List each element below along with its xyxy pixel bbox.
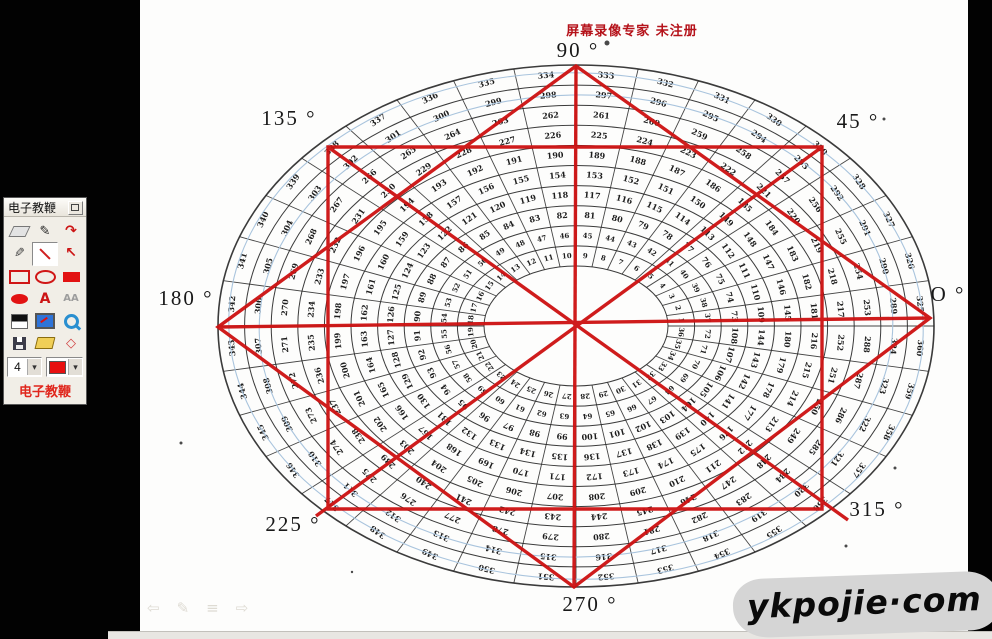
svg-text:210: 210 (667, 473, 687, 489)
svg-text:16: 16 (474, 290, 486, 303)
palette-footer-label: 电子教鞭 (4, 379, 86, 404)
angle-label-225: 225 ° (265, 512, 320, 536)
svg-text:278: 278 (491, 523, 510, 537)
svg-text:89: 89 (416, 290, 429, 304)
svg-text:46: 46 (559, 231, 570, 241)
svg-text:273: 273 (303, 405, 319, 425)
ellipse-outline-tool[interactable] (32, 266, 58, 288)
svg-text:191: 191 (505, 153, 524, 167)
svg-text:83: 83 (528, 212, 542, 225)
svg-text:106: 106 (712, 363, 728, 383)
svg-text:43: 43 (626, 238, 639, 250)
recorder-banner: 屏幕录像专家 未注册 (532, 20, 732, 39)
svg-text:337: 337 (368, 111, 387, 129)
svg-text:346: 346 (284, 460, 302, 480)
svg-text:47: 47 (536, 233, 548, 244)
svg-text:78: 78 (660, 228, 675, 243)
svg-text:102: 102 (634, 419, 653, 435)
clear-strokes-tool-icon: ↷ (65, 224, 77, 238)
angle-label-270: 270 ° (562, 592, 617, 616)
svg-text:28: 28 (580, 391, 591, 401)
svg-text:114: 114 (673, 209, 693, 227)
svg-text:115: 115 (645, 199, 664, 215)
svg-text:139: 139 (673, 425, 693, 443)
svg-text:226: 226 (544, 129, 562, 140)
svg-text:57: 57 (450, 358, 462, 371)
svg-text:202: 202 (371, 415, 389, 434)
svg-text:142: 142 (737, 372, 753, 391)
svg-text:123: 123 (415, 241, 433, 261)
svg-text:9: 9 (582, 251, 588, 260)
diamond-shape-tool-icon: ◇ (66, 337, 76, 350)
svg-text:51: 51 (461, 267, 474, 280)
svg-text:134: 134 (518, 446, 537, 460)
svg-text:137: 137 (615, 446, 634, 460)
svg-text:17: 17 (468, 302, 479, 314)
text-tool-icon: A (40, 292, 51, 306)
next-slide-button[interactable]: ⇨ (236, 601, 249, 616)
svg-text:35: 35 (673, 338, 684, 350)
svg-text:93: 93 (424, 365, 438, 380)
svg-text:218: 218 (826, 267, 840, 286)
angle-label-315: 315 ° (849, 497, 904, 521)
svg-text:87: 87 (438, 255, 453, 270)
svg-text:334: 334 (537, 69, 555, 80)
font-tool[interactable]: AA (58, 288, 84, 310)
svg-text:45: 45 (582, 231, 593, 241)
diamond-shape-tool[interactable]: ◇ (58, 332, 84, 354)
svg-text:183: 183 (785, 244, 801, 264)
svg-text:283: 283 (734, 491, 754, 509)
svg-text:164: 164 (363, 355, 377, 374)
palette-titlebar: 电子教鞭 (4, 198, 86, 217)
svg-text:200: 200 (338, 361, 352, 380)
svg-text:108: 108 (729, 327, 740, 345)
svg-text:117: 117 (583, 189, 601, 200)
ellipse-filled-tool[interactable] (6, 288, 32, 310)
eraser-icon (8, 226, 30, 237)
svg-text:188: 188 (629, 153, 648, 167)
svg-text:207: 207 (546, 491, 564, 502)
svg-text:339: 339 (284, 171, 302, 191)
svg-text:348: 348 (368, 523, 388, 541)
svg-text:7: 7 (617, 257, 625, 267)
svg-text:153: 153 (586, 169, 604, 180)
svg-text:193: 193 (429, 176, 449, 194)
svg-text:62: 62 (536, 408, 548, 419)
svg-text:29: 29 (597, 389, 609, 400)
svg-text:65: 65 (604, 408, 616, 419)
floppy-disk-icon (13, 337, 26, 350)
pen-color-select[interactable]: ▾ (46, 357, 83, 377)
slideshow-controls: ⇦✎≡⇨ (147, 601, 248, 616)
svg-text:67: 67 (645, 394, 658, 407)
annotation-palette: 电子教鞭 ✎↷✎↖AAA◇ 4 ▾ ▾ 电子教鞭 (3, 197, 87, 405)
svg-text:211: 211 (704, 458, 723, 476)
svg-text:208: 208 (588, 491, 606, 502)
svg-text:192: 192 (465, 162, 484, 178)
svg-text:187: 187 (667, 162, 686, 178)
pen-size-value: 4 (8, 360, 27, 374)
svg-text:184: 184 (763, 218, 781, 238)
svg-text:189: 189 (588, 149, 606, 160)
svg-text:353: 353 (656, 562, 675, 576)
slide-menu-button[interactable]: ≡ (206, 601, 219, 616)
svg-text:30: 30 (614, 384, 627, 396)
arrow-tool[interactable]: ↖ (58, 242, 84, 264)
svg-text:33: 33 (656, 360, 669, 373)
marker-tool[interactable]: ✎ (6, 242, 32, 264)
magnifier-icon (64, 314, 79, 329)
svg-text:31: 31 (630, 377, 643, 390)
svg-text:198: 198 (332, 302, 343, 320)
ellipse-filled-icon (11, 294, 28, 304)
svg-text:342: 342 (226, 295, 237, 313)
svg-text:290: 290 (877, 257, 891, 276)
svg-text:72: 72 (703, 329, 713, 340)
svg-text:34: 34 (666, 349, 678, 362)
svg-text:58: 58 (461, 371, 474, 384)
svg-text:70: 70 (690, 358, 702, 371)
angle-label-180: 180 ° (158, 286, 213, 310)
arrow-tool-icon: ↖ (65, 246, 77, 260)
svg-text:244: 244 (590, 511, 608, 522)
svg-text:91: 91 (412, 330, 423, 342)
svg-text:49: 49 (493, 245, 506, 258)
svg-text:133: 133 (487, 437, 507, 453)
svg-text:262: 262 (542, 109, 560, 120)
svg-text:169: 169 (476, 455, 496, 471)
svg-text:98: 98 (528, 427, 542, 440)
svg-text:175: 175 (688, 441, 707, 459)
svg-text:103: 103 (657, 408, 677, 426)
svg-text:197: 197 (338, 272, 352, 291)
svg-text:13: 13 (509, 262, 522, 275)
svg-text:174: 174 (656, 455, 676, 471)
line-tool[interactable] (32, 242, 58, 266)
svg-text:264: 264 (443, 126, 463, 142)
svg-text:155: 155 (512, 173, 531, 187)
chevron-down-icon: ▾ (68, 359, 82, 375)
svg-text:71: 71 (698, 344, 709, 356)
svg-text:25: 25 (525, 384, 538, 396)
svg-text:81: 81 (584, 210, 596, 221)
svg-text:82: 82 (556, 210, 568, 221)
chevron-down-icon: ▾ (27, 359, 41, 375)
svg-text:225: 225 (590, 129, 608, 140)
svg-text:148: 148 (741, 229, 759, 249)
svg-text:99: 99 (556, 431, 568, 442)
angle-label-45: 45 ° (837, 109, 880, 133)
font-tool-icon: AA (63, 294, 78, 304)
angle-label-90: 90 ° (557, 38, 600, 62)
svg-text:8: 8 (600, 253, 607, 263)
svg-text:154: 154 (549, 169, 567, 180)
svg-text:19: 19 (466, 327, 476, 338)
svg-text:162: 162 (358, 304, 369, 322)
rectangle-filled-icon (63, 272, 80, 282)
svg-text:276: 276 (398, 490, 418, 508)
svg-text:112: 112 (720, 241, 738, 260)
svg-text:281: 281 (642, 524, 661, 538)
svg-text:166: 166 (393, 403, 411, 423)
svg-text:201: 201 (351, 389, 367, 408)
svg-text:233: 233 (312, 267, 326, 286)
svg-text:172: 172 (586, 471, 604, 482)
svg-text:121: 121 (460, 209, 479, 227)
svg-text:101: 101 (608, 426, 627, 440)
svg-text:186: 186 (704, 177, 724, 195)
svg-text:280: 280 (592, 531, 610, 542)
screen-capture-tool[interactable] (32, 310, 58, 332)
svg-text:138: 138 (645, 437, 665, 453)
svg-text:288: 288 (862, 336, 873, 354)
svg-text:127: 127 (385, 329, 396, 347)
angle-label-0: O ° (931, 282, 966, 306)
svg-text:80: 80 (611, 212, 625, 225)
svg-text:271: 271 (279, 336, 290, 354)
svg-text:111: 111 (737, 261, 753, 280)
svg-text:170: 170 (511, 465, 530, 479)
svg-text:11: 11 (543, 252, 555, 263)
svg-text:22: 22 (483, 360, 496, 373)
svg-text:52: 52 (450, 281, 462, 294)
marker-tool-icon: ✎ (14, 247, 25, 260)
svg-text:360: 360 (915, 339, 926, 357)
svg-text:38: 38 (698, 297, 709, 309)
svg-text:92: 92 (416, 348, 429, 361)
svg-text:55: 55 (439, 329, 449, 340)
svg-text:128: 128 (389, 350, 403, 369)
svg-text:217: 217 (835, 301, 846, 319)
svg-text:100: 100 (581, 431, 599, 442)
svg-text:12: 12 (525, 256, 538, 268)
svg-text:214: 214 (785, 389, 801, 409)
pen-menu-button[interactable]: ✎ (177, 601, 190, 616)
eraser-tool[interactable] (6, 220, 32, 242)
svg-text:124: 124 (399, 260, 415, 280)
palette-title: 电子教鞭 (8, 199, 56, 216)
svg-text:182: 182 (800, 272, 814, 291)
svg-text:36: 36 (676, 327, 686, 338)
previous-slide-button[interactable]: ⇦ (147, 601, 160, 616)
rectangle-outline-icon (9, 270, 30, 284)
svg-text:321: 321 (829, 449, 847, 468)
svg-text:97: 97 (501, 420, 515, 434)
line-icon (39, 248, 50, 259)
palette-combos: 4 ▾ ▾ (4, 355, 86, 379)
svg-text:216: 216 (809, 332, 820, 350)
open-button[interactable] (32, 332, 58, 354)
monitor-icon (35, 313, 55, 329)
svg-text:40: 40 (678, 267, 691, 280)
svg-text:53: 53 (443, 297, 454, 309)
svg-text:204: 204 (429, 457, 449, 475)
open-folder-icon (35, 337, 56, 349)
svg-text:21: 21 (474, 349, 486, 362)
svg-text:85: 85 (477, 228, 492, 243)
svg-text:171: 171 (549, 471, 567, 482)
svg-text:253: 253 (862, 299, 873, 317)
svg-text:286: 286 (833, 406, 849, 426)
svg-text:235: 235 (305, 334, 316, 352)
svg-text:2: 2 (673, 304, 683, 311)
svg-text:335: 335 (477, 76, 496, 90)
svg-text:165: 165 (375, 380, 391, 399)
svg-text:163: 163 (358, 330, 369, 348)
svg-text:54: 54 (439, 313, 449, 324)
svg-text:236: 236 (312, 366, 326, 385)
svg-text:245: 245 (635, 504, 654, 518)
svg-text:190: 190 (546, 149, 564, 160)
svg-text:196: 196 (351, 243, 367, 263)
svg-text:56: 56 (442, 343, 453, 355)
svg-text:146: 146 (774, 277, 788, 296)
svg-text:135: 135 (551, 451, 569, 462)
svg-text:74: 74 (724, 291, 737, 305)
svg-text:75: 75 (714, 272, 728, 286)
palette-titlebar-button[interactable] (68, 201, 83, 215)
svg-text:160: 160 (375, 252, 391, 272)
svg-text:24: 24 (509, 377, 522, 390)
svg-text:105: 105 (698, 380, 716, 399)
svg-text:42: 42 (645, 245, 658, 258)
svg-text:255: 255 (833, 227, 849, 246)
svg-text:119: 119 (518, 192, 537, 206)
svg-text:141: 141 (720, 392, 738, 411)
watermark-text: ykpojie·com (732, 570, 992, 638)
svg-text:270: 270 (279, 298, 290, 316)
svg-text:132: 132 (460, 425, 479, 443)
svg-text:267: 267 (327, 195, 345, 214)
svg-text:48: 48 (514, 238, 527, 250)
zoom-tool[interactable] (58, 310, 84, 332)
svg-text:215: 215 (800, 361, 814, 380)
svg-text:152: 152 (622, 173, 641, 187)
svg-text:279: 279 (541, 531, 559, 542)
pen-tool-icon: ✎ (40, 225, 51, 238)
svg-text:63: 63 (559, 411, 570, 421)
pen-color-swatch (49, 361, 66, 374)
svg-text:178: 178 (761, 380, 777, 400)
svg-text:15: 15 (483, 279, 496, 292)
ellipse-outline-icon (35, 270, 56, 284)
svg-text:157: 157 (444, 193, 463, 211)
watermark: ykpojie·com (732, 570, 992, 638)
svg-text:116: 116 (615, 192, 634, 206)
angle-label-135: 135 ° (261, 106, 316, 130)
black-white-swatch-icon (11, 314, 28, 329)
svg-text:4: 4 (658, 281, 668, 290)
svg-text:3: 3 (667, 292, 677, 300)
svg-text:130: 130 (414, 391, 432, 411)
svg-text:88: 88 (425, 271, 439, 286)
svg-text:6: 6 (632, 263, 641, 273)
svg-text:118: 118 (551, 189, 569, 200)
svg-text:76: 76 (699, 255, 714, 270)
svg-text:303: 303 (306, 183, 324, 203)
svg-text:10: 10 (562, 251, 573, 261)
svg-text:179: 179 (774, 356, 788, 375)
svg-text:330: 330 (765, 111, 785, 129)
svg-text:161: 161 (364, 277, 378, 296)
svg-text:107: 107 (723, 345, 737, 364)
svg-text:64: 64 (582, 411, 593, 421)
svg-text:173: 173 (621, 465, 640, 479)
svg-text:27: 27 (561, 391, 572, 401)
svg-text:242: 242 (498, 504, 517, 518)
svg-text:120: 120 (488, 199, 508, 215)
svg-text:274: 274 (327, 437, 345, 457)
svg-text:177: 177 (741, 403, 759, 422)
rectangle-outline-tool[interactable] (6, 266, 32, 288)
svg-text:199: 199 (332, 332, 343, 350)
svg-text:60: 60 (493, 394, 506, 407)
svg-text:195: 195 (371, 218, 389, 237)
svg-text:156: 156 (476, 180, 496, 196)
svg-text:126: 126 (385, 305, 396, 323)
degree-wheel-chart: 1234567891011121314151617181920212223242… (0, 0, 992, 638)
svg-text:79: 79 (636, 218, 651, 232)
svg-text:234: 234 (305, 300, 316, 318)
svg-text:143: 143 (749, 351, 763, 370)
svg-text:243: 243 (544, 511, 562, 522)
svg-text:209: 209 (628, 485, 647, 499)
svg-text:151: 151 (656, 181, 675, 197)
svg-text:277: 277 (443, 510, 462, 526)
svg-text:323: 323 (877, 377, 891, 396)
svg-text:136: 136 (583, 451, 601, 462)
svg-text:168: 168 (444, 441, 464, 459)
svg-text:26: 26 (543, 389, 555, 400)
svg-text:61: 61 (514, 402, 527, 414)
svg-text:181: 181 (809, 302, 820, 320)
svg-text:282: 282 (690, 510, 709, 526)
rectangle-filled-tool[interactable] (58, 266, 84, 288)
svg-text:259: 259 (690, 126, 710, 142)
svg-text:44: 44 (604, 233, 616, 244)
svg-text:261: 261 (593, 109, 611, 120)
svg-text:150: 150 (688, 193, 708, 211)
save-button[interactable] (6, 332, 32, 354)
clear-strokes-tool[interactable]: ↷ (58, 220, 84, 242)
pen-tool[interactable]: ✎ (32, 220, 58, 242)
svg-text:147: 147 (761, 252, 777, 271)
svg-text:305: 305 (261, 257, 275, 276)
svg-text:69: 69 (678, 371, 691, 384)
svg-text:84: 84 (501, 218, 516, 232)
svg-text:144: 144 (756, 329, 767, 347)
svg-text:249: 249 (785, 426, 803, 446)
svg-text:66: 66 (625, 402, 638, 414)
svg-text:159: 159 (393, 229, 411, 249)
svg-text:205: 205 (465, 473, 484, 489)
svg-text:206: 206 (504, 485, 523, 499)
svg-text:110: 110 (749, 283, 763, 302)
pen-size-select[interactable]: 4 ▾ (7, 357, 42, 377)
svg-text:39: 39 (690, 281, 702, 294)
text-tool[interactable]: A (32, 288, 58, 310)
svg-text:180: 180 (782, 330, 793, 348)
svg-text:129: 129 (399, 371, 415, 391)
svg-text:268: 268 (303, 226, 319, 246)
svg-text:125: 125 (389, 283, 403, 302)
svg-text:355: 355 (765, 524, 784, 542)
svg-text:94: 94 (438, 382, 453, 397)
svg-text:90: 90 (412, 310, 423, 322)
svg-text:308: 308 (261, 376, 275, 395)
black-white-swatch[interactable] (6, 310, 32, 332)
